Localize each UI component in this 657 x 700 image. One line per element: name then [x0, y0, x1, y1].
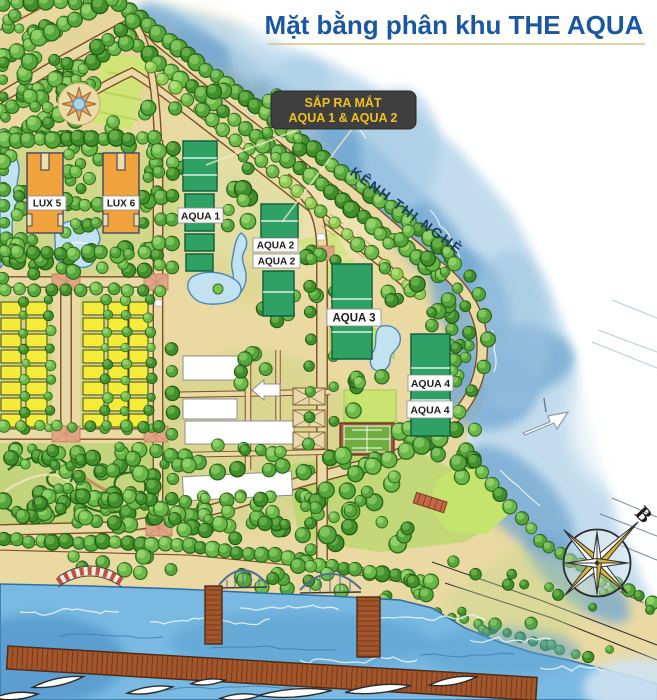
svg-text:AQUA 1 & AQUA 2: AQUA 1 & AQUA 2: [288, 111, 397, 125]
svg-text:LUX 6: LUX 6: [107, 199, 136, 210]
svg-text:LUX 5: LUX 5: [33, 199, 62, 210]
svg-text:Mặt bằng phân khu THE AQUA: Mặt bằng phân khu THE AQUA: [265, 10, 644, 40]
svg-text:AQUA 3: AQUA 3: [332, 313, 375, 325]
svg-text:AQUA 1: AQUA 1: [181, 210, 220, 222]
svg-text:SẮP RA MẮT: SẮP RA MẮT: [304, 95, 381, 110]
svg-text:AQUA 4: AQUA 4: [411, 378, 450, 390]
svg-text:AQUA 4: AQUA 4: [410, 404, 449, 416]
svg-text:AQUA 2: AQUA 2: [258, 257, 296, 268]
svg-text:AQUA 2: AQUA 2: [257, 241, 295, 252]
